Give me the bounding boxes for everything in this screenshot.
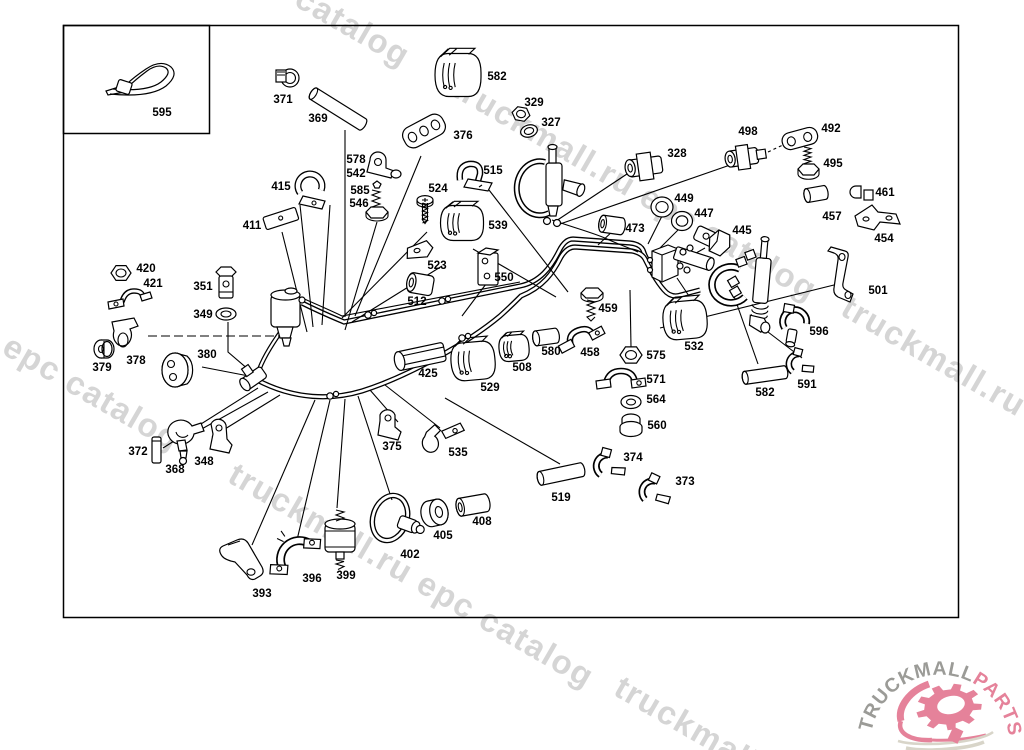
svg-text:truckmall.ru epc catalog: truckmall.ru epc catalog — [0, 218, 187, 458]
svg-text:564: 564 — [646, 394, 666, 406]
svg-text:378: 378 — [126, 355, 146, 367]
svg-text:396: 396 — [302, 573, 321, 585]
svg-text:595: 595 — [152, 107, 172, 119]
svg-text:495: 495 — [823, 158, 843, 170]
svg-text:578: 578 — [346, 154, 366, 166]
svg-text:454: 454 — [874, 233, 894, 245]
svg-text:492: 492 — [821, 123, 840, 135]
svg-text:425: 425 — [418, 368, 438, 380]
svg-text:457: 457 — [822, 211, 841, 223]
svg-text:351: 351 — [193, 281, 213, 293]
svg-text:373: 373 — [675, 476, 694, 488]
svg-text:348: 348 — [194, 456, 214, 468]
svg-text:542: 542 — [346, 168, 365, 180]
svg-text:402: 402 — [400, 549, 419, 561]
svg-text:498: 498 — [738, 126, 758, 138]
svg-text:515: 515 — [483, 165, 503, 177]
svg-text:458: 458 — [580, 347, 600, 359]
svg-text:368: 368 — [165, 464, 185, 476]
svg-text:405: 405 — [433, 530, 453, 542]
svg-text:519: 519 — [551, 492, 570, 504]
svg-text:596: 596 — [809, 326, 828, 338]
svg-text:379: 379 — [92, 362, 111, 374]
svg-text:369: 369 — [308, 113, 327, 125]
svg-text:329: 329 — [524, 97, 543, 109]
svg-text:508: 508 — [512, 362, 532, 374]
svg-text:408: 408 — [472, 516, 492, 528]
svg-text:411: 411 — [243, 220, 262, 232]
svg-text:349: 349 — [193, 309, 212, 321]
svg-text:420: 420 — [136, 263, 155, 275]
svg-text:421: 421 — [143, 278, 163, 290]
svg-text:501: 501 — [868, 285, 888, 297]
svg-text:415: 415 — [271, 181, 291, 193]
svg-text:445: 445 — [732, 225, 752, 237]
svg-text:523: 523 — [427, 260, 446, 272]
svg-text:585: 585 — [350, 185, 370, 197]
svg-text:473: 473 — [625, 223, 644, 235]
svg-text:truckmall.ru epc catalog: truckmall.ru epc catalog — [39, 0, 417, 74]
svg-text:371: 371 — [273, 94, 293, 106]
svg-text:375: 375 — [382, 441, 402, 453]
svg-text:327: 327 — [541, 117, 560, 129]
svg-text:524: 524 — [428, 183, 448, 195]
svg-text:truckmall.ru epc catalog: truckmall.ru epc catalog — [223, 455, 601, 695]
svg-text:328: 328 — [667, 148, 687, 160]
svg-text:539: 539 — [488, 220, 507, 232]
svg-text:560: 560 — [647, 420, 666, 432]
svg-text:591: 591 — [797, 379, 817, 391]
svg-text:447: 447 — [694, 208, 713, 220]
svg-text:582: 582 — [755, 387, 774, 399]
svg-text:529: 529 — [480, 382, 499, 394]
svg-text:truckmall.ru epc catalog: truckmall.ru epc catalog — [836, 288, 1024, 528]
svg-text:372: 372 — [128, 446, 147, 458]
svg-text:535: 535 — [448, 447, 468, 459]
svg-text:376: 376 — [453, 130, 472, 142]
svg-text:512: 512 — [407, 296, 426, 308]
svg-text:380: 380 — [197, 349, 216, 361]
svg-text:459: 459 — [598, 303, 617, 315]
svg-text:546: 546 — [349, 198, 368, 210]
svg-text:571: 571 — [646, 374, 666, 386]
svg-text:399: 399 — [336, 570, 355, 582]
svg-text:550: 550 — [494, 272, 513, 284]
svg-text:532: 532 — [684, 341, 703, 353]
svg-text:449: 449 — [674, 193, 693, 205]
svg-text:374: 374 — [623, 452, 643, 464]
svg-text:575: 575 — [646, 350, 666, 362]
svg-text:393: 393 — [252, 588, 271, 600]
svg-text:461: 461 — [875, 187, 895, 199]
svg-text:582: 582 — [487, 71, 506, 83]
svg-text:580: 580 — [541, 346, 560, 358]
